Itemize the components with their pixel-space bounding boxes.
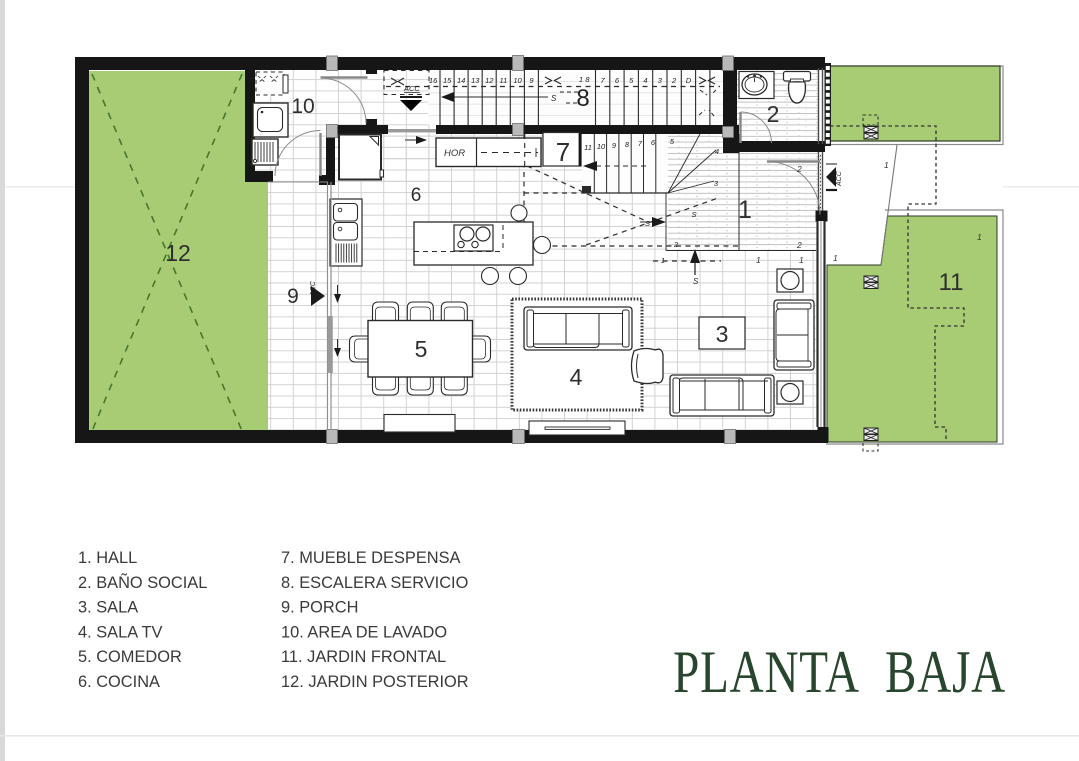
svg-text:1: 1 bbox=[756, 255, 761, 265]
svg-text:11: 11 bbox=[500, 76, 508, 85]
svg-text:HOR: HOR bbox=[444, 148, 465, 159]
svg-text:ACC: ACC bbox=[836, 170, 843, 187]
svg-text:6. COCINA: 6. COCINA bbox=[78, 673, 160, 691]
svg-text:1: 1 bbox=[833, 253, 838, 263]
svg-text:10. AREA DE LAVADO: 10. AREA DE LAVADO bbox=[281, 623, 447, 641]
svg-text:10: 10 bbox=[291, 95, 314, 118]
svg-text:11: 11 bbox=[939, 269, 964, 296]
svg-text:1: 1 bbox=[738, 196, 752, 224]
svg-text:9. PORCH: 9. PORCH bbox=[281, 599, 358, 617]
svg-text:5: 5 bbox=[415, 336, 428, 362]
svg-text:1. HALL: 1. HALL bbox=[78, 549, 137, 567]
svg-text:1: 1 bbox=[977, 232, 982, 242]
svg-text:S: S bbox=[691, 210, 696, 219]
svg-text:12: 12 bbox=[485, 76, 494, 85]
svg-text:5. COMEDOR: 5. COMEDOR bbox=[78, 648, 182, 666]
svg-text:9: 9 bbox=[287, 285, 299, 308]
svg-text:2: 2 bbox=[767, 101, 780, 127]
svg-text:4: 4 bbox=[570, 364, 583, 390]
svg-text:D: D bbox=[686, 76, 692, 85]
svg-text:2: 2 bbox=[796, 164, 802, 174]
svg-text:2: 2 bbox=[796, 240, 802, 250]
svg-text:2: 2 bbox=[671, 76, 677, 85]
svg-text:PLANTA BAJA: PLANTA BAJA bbox=[673, 639, 1006, 706]
svg-text:2: 2 bbox=[673, 240, 679, 249]
svg-text:S: S bbox=[551, 94, 557, 103]
svg-text:10: 10 bbox=[597, 142, 606, 151]
svg-text:7: 7 bbox=[556, 137, 570, 167]
svg-text:1: 1 bbox=[799, 255, 804, 265]
svg-text:S: S bbox=[693, 277, 699, 286]
svg-text:11. JARDIN FRONTAL: 11. JARDIN FRONTAL bbox=[281, 648, 446, 666]
svg-text:3. SALA: 3. SALA bbox=[78, 599, 138, 617]
svg-text:3: 3 bbox=[716, 321, 729, 347]
svg-text:11: 11 bbox=[584, 143, 592, 152]
svg-text:ACC: ACC bbox=[403, 84, 420, 93]
svg-text:8: 8 bbox=[576, 85, 589, 112]
svg-text:4: 4 bbox=[715, 147, 719, 156]
svg-text:6: 6 bbox=[411, 185, 422, 206]
svg-text:10: 10 bbox=[513, 76, 522, 85]
svg-text:15: 15 bbox=[443, 76, 452, 85]
svg-text:1: 1 bbox=[579, 75, 583, 84]
svg-text:13: 13 bbox=[471, 76, 480, 85]
svg-text:1: 1 bbox=[884, 160, 889, 170]
svg-text:S: S bbox=[645, 219, 650, 228]
svg-text:12: 12 bbox=[165, 240, 191, 266]
svg-text:2. BAÑO SOCIAL: 2. BAÑO SOCIAL bbox=[78, 572, 207, 592]
svg-text:12. JARDIN POSTERIOR: 12. JARDIN POSTERIOR bbox=[281, 673, 469, 691]
svg-text:7. MUEBLE DESPENSA: 7. MUEBLE DESPENSA bbox=[281, 549, 461, 567]
svg-text:4. SALA TV: 4. SALA TV bbox=[78, 623, 163, 641]
svg-text:4: 4 bbox=[643, 76, 647, 85]
svg-text:8. ESCALERA SERVICIO: 8. ESCALERA SERVICIO bbox=[281, 574, 468, 592]
svg-text:16: 16 bbox=[429, 76, 438, 85]
svg-text:14: 14 bbox=[457, 76, 465, 85]
